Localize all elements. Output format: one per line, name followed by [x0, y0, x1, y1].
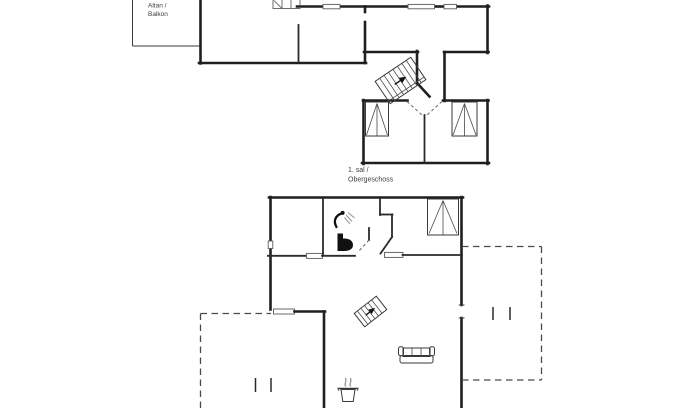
sofa-icon: [399, 347, 435, 363]
wardrobe-icon: [452, 102, 477, 136]
cooking-pot-icon: [338, 378, 359, 401]
shower-icon: [335, 211, 355, 227]
staircase-down-icon: [354, 296, 387, 327]
upper-walls: [199, 0, 489, 164]
floor-caption-line1: 1. sal /: [348, 167, 369, 174]
balcony-label-line1: Altan /: [148, 3, 167, 10]
wardrobe-icon: [366, 102, 389, 136]
bathroom: [335, 211, 355, 251]
terrace-right-outline: [462, 247, 542, 381]
door-swing-dashes: [407, 102, 442, 116]
ground-floor-plan: [201, 197, 542, 408]
balcony-label-line2: Balkon: [148, 11, 168, 18]
toilet-icon: [338, 234, 354, 252]
terrace-left-outline: [201, 314, 272, 408]
floorplan-canvas: Altan / Balkon: [0, 0, 680, 408]
terrace-door-bars: [256, 378, 272, 392]
ground-walls: [268, 197, 465, 408]
upper-floor-plan: Altan / Balkon: [133, 0, 490, 184]
terrace-door-bars: [493, 307, 510, 320]
wardrobe-icon: [428, 199, 459, 235]
floorplan-svg: Altan / Balkon: [0, 0, 680, 408]
floor-caption-line2: Obergeschoss: [348, 177, 394, 184]
